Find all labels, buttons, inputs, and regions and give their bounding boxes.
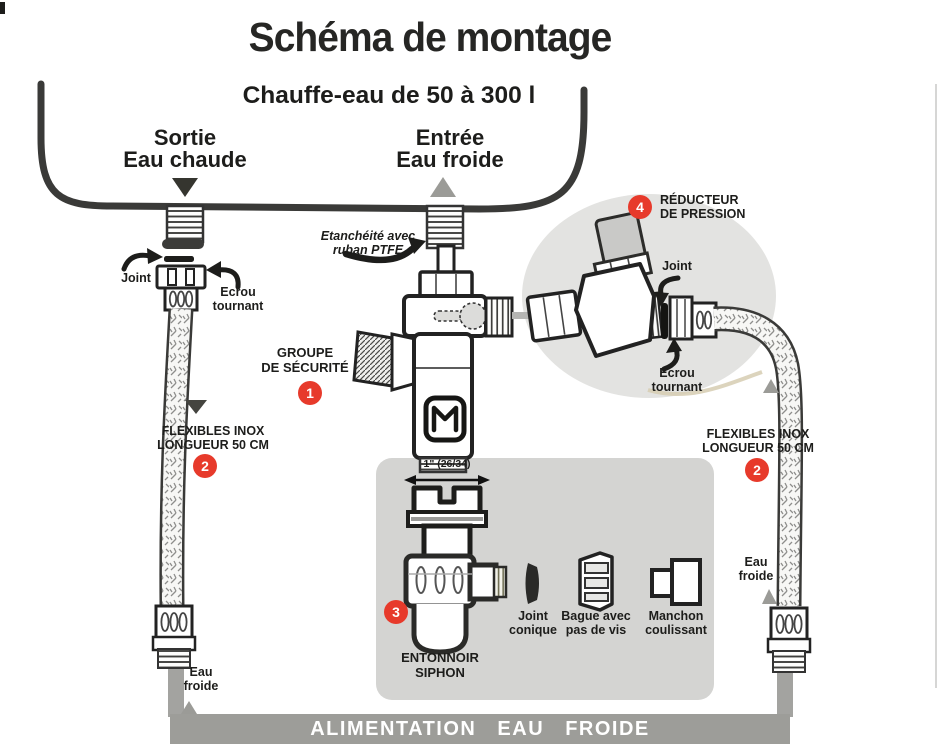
hot-outlet-pipe xyxy=(162,206,204,249)
cold-flow-arrow xyxy=(430,177,456,197)
groupe-securite-label: GROUPE DE SÉCURITÉ xyxy=(235,346,375,375)
safety-group-drawing xyxy=(354,246,512,472)
left-joint-washer xyxy=(164,256,194,262)
reducer-inlet-nut xyxy=(527,291,581,341)
left-ecrou-label: Ecrou tournant xyxy=(194,285,282,313)
right-supply-pipe xyxy=(777,672,793,717)
left-hose-connector xyxy=(165,288,197,310)
hot-outlet-label: Sortie Eau chaude xyxy=(85,127,285,172)
right-swivel-nut xyxy=(670,297,692,339)
entonnoir-label: ENTONNOIR SIPHON xyxy=(375,651,505,680)
page-title: Schéma de montage xyxy=(145,14,715,61)
cold-water-supply-label: ALIMENTATION EAU FROIDE xyxy=(310,718,650,740)
right-coldwater-flow-arrow xyxy=(762,589,777,604)
left-ecrou-arrow xyxy=(206,261,238,287)
badge-reducteur: 4 xyxy=(628,195,652,219)
tank-label: Chauffe-eau de 50 à 300 l xyxy=(139,82,639,110)
hot-flow-arrow xyxy=(172,178,198,197)
valve-key xyxy=(434,311,462,321)
dimension-label: 1" (26/34) xyxy=(397,459,497,471)
right-hose-end-fitting xyxy=(768,608,810,672)
cold-water-supply-bar: ALIMENTATION EAU FROIDE xyxy=(170,714,790,744)
left-joint-label: Joint xyxy=(112,271,160,285)
right-joint-washer xyxy=(661,303,668,339)
montage-diagram: Schéma de montage Chauffe-eau de 50 à 30… xyxy=(0,0,950,744)
joint-conique-part xyxy=(526,563,540,604)
badge-entonnoir: 3 xyxy=(384,600,408,624)
left-hose-end-fitting xyxy=(153,606,195,668)
reducteur-label: RÉDUCTEUR DE PRESSION xyxy=(660,193,790,221)
right-joint-label: Joint xyxy=(652,259,702,273)
badge-right-flexibles: 2 xyxy=(745,458,769,482)
manchon-label: Manchon coulissant xyxy=(626,609,726,637)
right-hose-connector xyxy=(692,303,716,337)
right-ecrou-label: Ecrou tournant xyxy=(632,366,722,394)
right-eau-froide-label: Eau froide xyxy=(716,555,796,583)
ptfe-note: Etanchéité avec ruban PTFE xyxy=(298,229,438,257)
badge-groupe-securite: 1 xyxy=(298,381,322,405)
scan-mark xyxy=(0,2,5,14)
badge-left-flexibles: 2 xyxy=(193,454,217,478)
left-flexibles-label: FLEXIBLES INOX LONGUEUR 50 CM xyxy=(128,424,298,452)
left-eau-froide-label: Eau froide xyxy=(161,665,241,693)
left-flex-hose xyxy=(172,309,181,606)
right-flexibles-label: FLEXIBLES INOX LONGUEUR 50 CM xyxy=(673,427,843,455)
bague-part xyxy=(580,553,612,610)
cold-inlet-label: Entrée Eau froide xyxy=(350,127,550,172)
diagram-canvas xyxy=(0,0,950,744)
